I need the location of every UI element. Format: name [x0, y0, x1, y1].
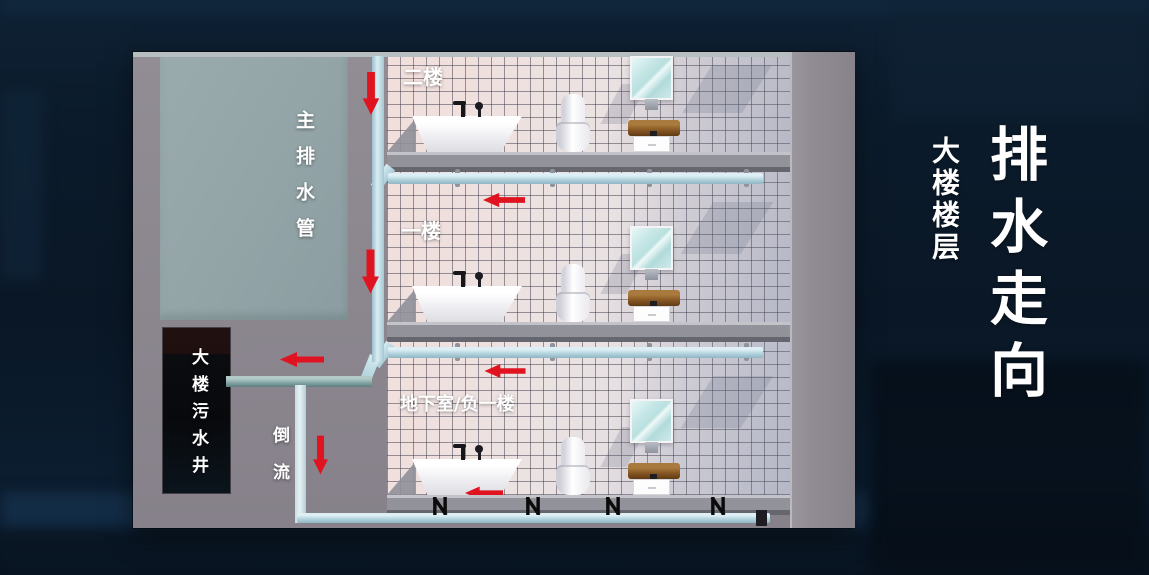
main-drain-label: 主排水管	[291, 110, 318, 254]
faucet-stem	[461, 103, 465, 117]
floor-2-bathroom: 二楼	[387, 57, 790, 152]
basement-toilet	[555, 437, 591, 495]
basement-faucet	[451, 444, 487, 460]
drain-trap-icon	[525, 497, 541, 514]
backflow-label: 倒流	[267, 426, 292, 500]
floor-slab-between-1-and-basement	[387, 322, 790, 342]
basement-mirror	[630, 399, 673, 443]
basement-mirror-bracket	[645, 442, 658, 453]
right-concrete-wall	[790, 52, 855, 528]
shower-stem	[478, 451, 481, 460]
drain-trap-icon	[710, 497, 726, 514]
sewage-well-label: 大楼污水井	[186, 348, 211, 483]
floor-2-cabinet	[633, 136, 670, 152]
basement-ceiling-pipe	[388, 347, 763, 358]
flow-arrow-down-backflow	[313, 433, 328, 477]
background-patch-top-right	[890, 0, 1149, 120]
cabinet-handle	[648, 487, 656, 489]
floor-2-mirror-bracket	[645, 99, 658, 110]
flow-arrow-left-floor1-ceiling	[483, 192, 525, 208]
basement-label: 地下室/负一楼	[400, 390, 515, 416]
floor-2-faucet	[451, 101, 487, 117]
floor-1-faucet	[451, 271, 487, 287]
toilet-base	[556, 122, 590, 152]
toilet-base	[556, 292, 590, 322]
basement-bathroom: 地下室/负一楼	[387, 342, 790, 495]
flow-arrow-left-sewage	[280, 352, 324, 367]
floor-1-bathroom: 一楼	[387, 172, 790, 322]
backflow-vertical-pipe	[295, 385, 306, 523]
cabinet-handle	[648, 314, 656, 316]
basement-cabinet	[633, 479, 670, 495]
page-subtitle: 大楼楼层	[924, 136, 964, 264]
faucet-stem	[461, 446, 465, 460]
faucet-stem	[461, 273, 465, 287]
building-cross-section-panel: 主排水管 大楼污水井 倒流	[133, 52, 853, 528]
flow-arrow-down-main-upper	[362, 72, 380, 115]
main-drain-pipe-area	[160, 57, 348, 320]
drain-trap-icon	[605, 497, 621, 514]
floor-2-mirror	[630, 56, 673, 100]
floor-slab-between-2-and-1	[387, 152, 790, 172]
floor-1-mirror-bracket	[645, 269, 658, 280]
page-title: 排水走向	[972, 124, 1056, 412]
floor-1-label: 一楼	[401, 215, 441, 244]
floor-1-mirror	[630, 226, 673, 270]
floor-1-cabinet	[633, 306, 670, 322]
background-patch-left	[0, 90, 42, 280]
floor1-ceiling-pipe	[388, 173, 763, 184]
floor-1-toilet	[555, 264, 591, 322]
flow-arrow-down-main-lower	[362, 245, 379, 298]
floor-2-toilet	[555, 94, 591, 152]
toilet-base	[556, 465, 590, 495]
shower-stem	[478, 108, 481, 117]
drain-trap-icon	[432, 497, 448, 514]
cabinet-handle	[648, 144, 656, 146]
drain-pipe-end-cap	[756, 510, 767, 526]
shower-stem	[478, 278, 481, 287]
drainage-diagram-page: 主排水管 大楼污水井 倒流	[0, 0, 1149, 575]
floor-2-label: 二楼	[403, 61, 443, 90]
flow-arrow-left-basement-ceiling	[483, 364, 527, 378]
bathroom-column: 二楼	[387, 57, 790, 515]
